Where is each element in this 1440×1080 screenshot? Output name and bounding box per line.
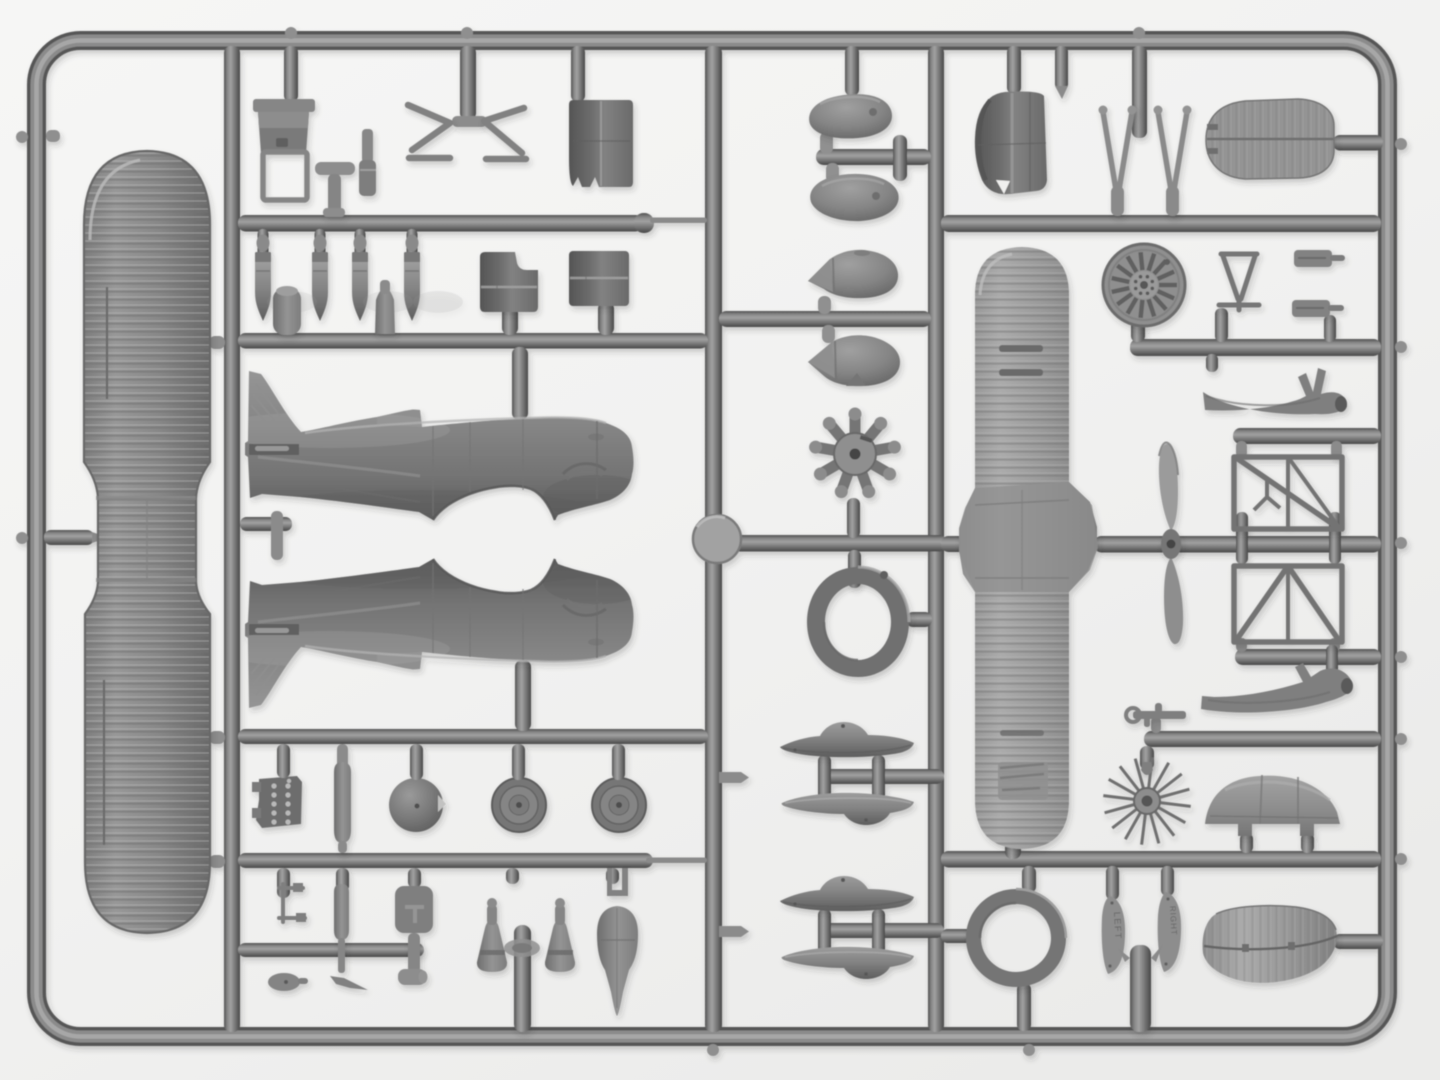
svg-text:LEFT: LEFT: [1112, 912, 1123, 941]
svg-text:RIGHT: RIGHT: [1168, 906, 1179, 936]
